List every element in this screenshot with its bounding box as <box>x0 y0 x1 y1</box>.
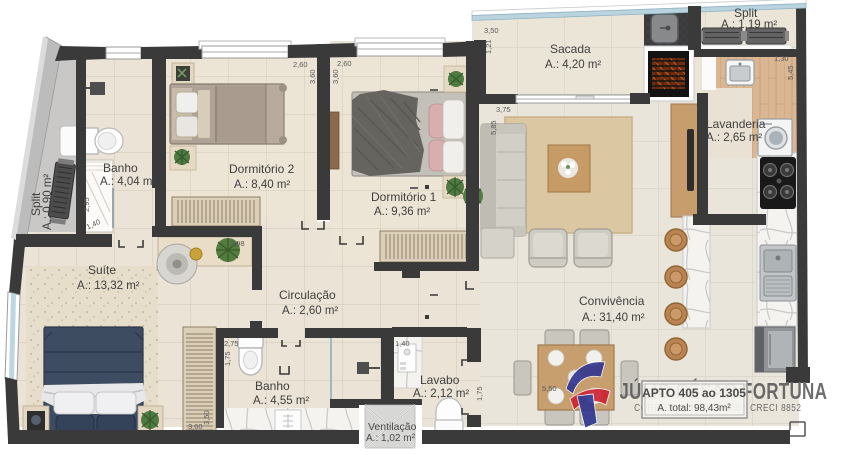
svg-text:1,40: 1,40 <box>395 339 410 348</box>
svg-text:2,60: 2,60 <box>293 60 308 69</box>
svg-text:Banho: Banho <box>255 379 290 393</box>
svg-text:A.: 8,40 m²: A.: 8,40 m² <box>234 179 290 191</box>
svg-text:2,75: 2,75 <box>224 339 239 348</box>
svg-text:Lavanderia: Lavanderia <box>706 117 766 131</box>
svg-text:Dormitório 2: Dormitório 2 <box>229 162 295 176</box>
svg-text:3,50: 3,50 <box>484 26 499 35</box>
svg-text:A.: 2,65 m²: A.: 2,65 m² <box>706 132 762 144</box>
svg-text:Ventilação: Ventilação <box>368 421 417 433</box>
svg-text:3,60: 3,60 <box>331 69 340 84</box>
svg-text:5,45: 5,45 <box>786 65 795 80</box>
svg-text:A. total: 98,43m²: A. total: 98,43m² <box>657 403 731 414</box>
svg-text:A.: 0,90 m²: A.: 0,90 m² <box>42 174 54 230</box>
svg-text:A.: 31,40 m²: A.: 31,40 m² <box>582 312 645 324</box>
svg-text:Split: Split <box>29 192 43 216</box>
svg-text:3,50: 3,50 <box>202 410 211 425</box>
svg-text:1,21: 1,21 <box>484 39 493 54</box>
svg-text:3,98: 3,98 <box>230 239 245 248</box>
svg-text:A.: 13,32 m²: A.: 13,32 m² <box>77 280 140 292</box>
svg-text:A.: 2,60 m²: A.: 2,60 m² <box>282 305 338 317</box>
svg-text:A.: 4,55 m²: A.: 4,55 m² <box>253 395 309 407</box>
svg-text:Sacada: Sacada <box>550 42 591 56</box>
svg-text:1,30: 1,30 <box>774 54 789 63</box>
svg-text:A.: 4,04 m²: A.: 4,04 m² <box>100 176 156 188</box>
svg-text:Split: Split <box>734 6 758 20</box>
svg-text:Lavabo: Lavabo <box>420 373 460 387</box>
svg-text:A.: 4,20 m²: A.: 4,20 m² <box>545 59 601 71</box>
svg-text:A.: 9,36 m²: A.: 9,36 m² <box>374 206 430 218</box>
svg-text:APTO 405 ao 1305: APTO 405 ao 1305 <box>642 386 746 400</box>
svg-text:Suíte: Suíte <box>88 263 116 277</box>
svg-text:A.: 2,12 m²: A.: 2,12 m² <box>413 388 469 400</box>
svg-text:5,85: 5,85 <box>489 120 498 135</box>
svg-text:3,75: 3,75 <box>496 105 511 114</box>
svg-text:1,75: 1,75 <box>223 351 232 366</box>
svg-text:A.: 1,02 m²: A.: 1,02 m² <box>366 433 416 444</box>
svg-text:1,75: 1,75 <box>475 386 484 401</box>
svg-text:Banho: Banho <box>103 161 138 175</box>
svg-text:2,95: 2,95 <box>82 197 91 212</box>
svg-text:A.: 1,19 m²: A.: 1,19 m² <box>721 19 777 31</box>
svg-text:Dormitório 1: Dormitório 1 <box>371 190 437 204</box>
svg-text:Convivência: Convivência <box>579 294 645 308</box>
svg-text:3,60: 3,60 <box>308 69 317 84</box>
svg-text:Circulação: Circulação <box>279 288 336 302</box>
svg-text:5,50: 5,50 <box>542 384 557 393</box>
svg-text:2,60: 2,60 <box>337 59 352 68</box>
svg-text:3,60: 3,60 <box>188 422 203 431</box>
